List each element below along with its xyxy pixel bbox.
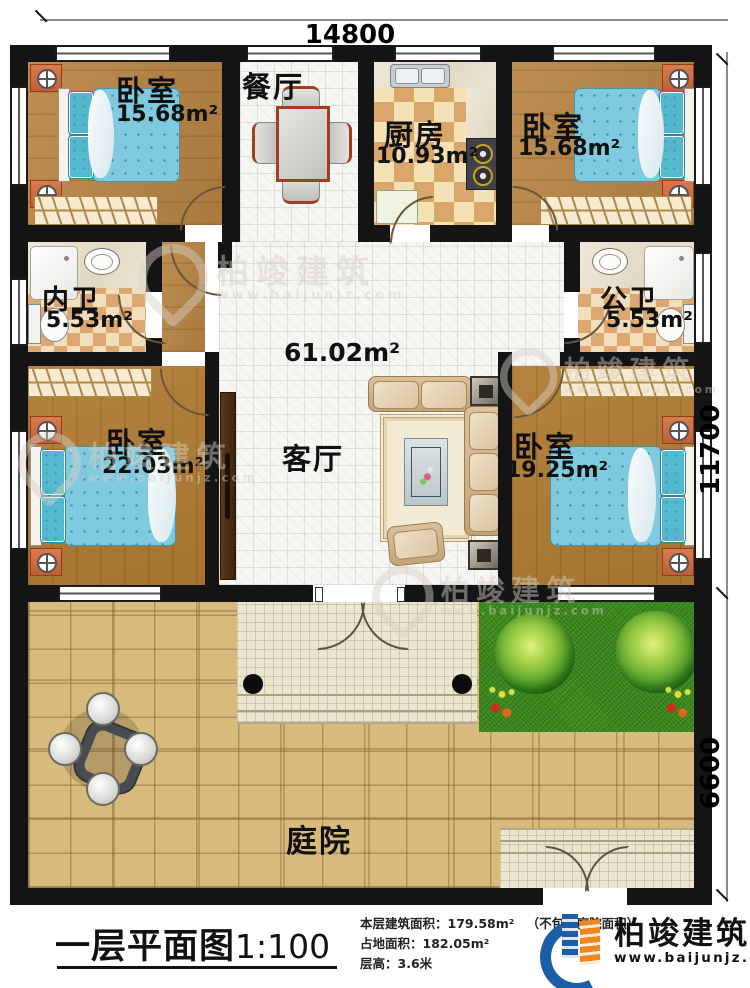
dining-table [276, 106, 330, 182]
sofa-cushion [393, 528, 440, 560]
pillow [41, 450, 65, 495]
nightstand [662, 416, 694, 444]
wall-segment [560, 352, 712, 366]
room-area: 19.25m² [506, 458, 608, 483]
room-area: 5.53m² [46, 308, 133, 333]
wardrobe [34, 196, 158, 225]
pillow [661, 450, 685, 495]
window [694, 86, 712, 186]
bed-sheet-fold [88, 90, 114, 178]
room-area: 5.53m² [606, 308, 693, 333]
brand-name: 柏竣建筑 [614, 918, 750, 951]
room-label: 庭院 [286, 816, 352, 861]
dimension-top-width: 14800 [300, 20, 400, 50]
sink-basin [395, 68, 419, 84]
washbasin [592, 248, 628, 275]
entry-door-opening [313, 585, 405, 602]
outdoor-chair [48, 732, 82, 766]
entry-door-jamb [315, 587, 323, 602]
porch-column [452, 674, 472, 694]
dimension-right-lower: 6600 [696, 733, 726, 813]
lamp-icon [669, 421, 689, 441]
nightstand [662, 548, 694, 576]
armchair [386, 521, 446, 567]
dimension-line-right [726, 52, 728, 902]
outdoor-chair [124, 732, 158, 766]
room-area: 10.93m² [376, 144, 478, 169]
wardrobe [28, 368, 152, 397]
pillow [41, 497, 65, 542]
flower-cluster [486, 676, 518, 722]
kitchen-sink [390, 64, 450, 88]
wall-segment [358, 45, 374, 242]
porch-step-line [237, 710, 477, 712]
wall-segment [496, 45, 512, 242]
window [552, 45, 656, 62]
brand-website: www.baijunjz.com [614, 950, 750, 966]
entry-step-line [500, 840, 694, 842]
wall-segment [146, 242, 162, 292]
plan-title-text: 一层平面图 [55, 918, 235, 969]
side-table-speaker [468, 540, 500, 570]
nightstand [30, 548, 62, 576]
window [10, 430, 28, 550]
brand-logo: 柏竣建筑 www.baijunjz.com [538, 906, 750, 978]
window [394, 45, 482, 62]
wall-segment [430, 225, 512, 242]
window [556, 585, 656, 602]
logo-building-orange-icon [580, 919, 600, 965]
wall-segment [549, 225, 712, 242]
sofa-cushion [469, 412, 499, 450]
lamp-icon [37, 69, 57, 89]
washbasin [84, 248, 120, 275]
nightstand [30, 416, 62, 444]
pillow [661, 497, 685, 542]
dimension-tick-icon [34, 10, 47, 23]
lamp-icon [669, 553, 689, 573]
window [10, 86, 28, 186]
sofa-cushion [469, 494, 499, 532]
window [694, 252, 712, 344]
bed-sheet-fold [638, 90, 664, 178]
plan-scale: 1:100 [235, 927, 330, 966]
burner-icon [473, 166, 493, 186]
bed-sheet-fold [628, 448, 656, 542]
wall-segment [358, 225, 390, 242]
floor-plan-canvas: 14800 11700 6600 [0, 0, 750, 988]
coffee-table [404, 438, 448, 506]
coffee-table-top [411, 447, 441, 497]
sink-basin [421, 68, 445, 84]
sofa-cushion [421, 381, 467, 409]
lamp-icon [669, 69, 689, 89]
wall-segment [10, 352, 162, 366]
room-area: 22.03m² [102, 454, 204, 479]
porch-step-line [237, 694, 477, 696]
porch-column [243, 674, 263, 694]
sofa-cushion [373, 381, 419, 409]
window [55, 45, 171, 62]
sofa-cushion [469, 453, 499, 491]
room-area: 61.02m² [284, 338, 400, 367]
sofa-top [368, 376, 472, 412]
room-area: 15.68m² [518, 136, 620, 161]
room-label: 客厅 [282, 436, 344, 478]
lamp-icon [37, 421, 57, 441]
entry-door-jamb [397, 587, 405, 602]
logo-building-blue-icon [562, 914, 578, 958]
lamp-icon [37, 553, 57, 573]
flower-cluster [662, 676, 694, 722]
wall-segment [10, 225, 185, 242]
wall-segment [564, 242, 580, 292]
window [10, 278, 28, 346]
title-underline [57, 966, 337, 969]
outdoor-chair [86, 692, 120, 726]
wardrobe [560, 368, 696, 397]
plan-title: 一层平面图 1:100 [55, 918, 330, 969]
wardrobe [540, 196, 692, 225]
window [58, 585, 162, 602]
room-area: 15.68m² [116, 102, 218, 127]
entry-step-line [500, 852, 694, 854]
tv-icon [225, 453, 230, 519]
tv-cabinet [220, 392, 236, 580]
outdoor-chair [86, 772, 120, 806]
brand-logo-icon [538, 906, 608, 978]
room-label: 餐厅 [242, 64, 304, 106]
dimension-right-upper: 11700 [696, 415, 726, 495]
